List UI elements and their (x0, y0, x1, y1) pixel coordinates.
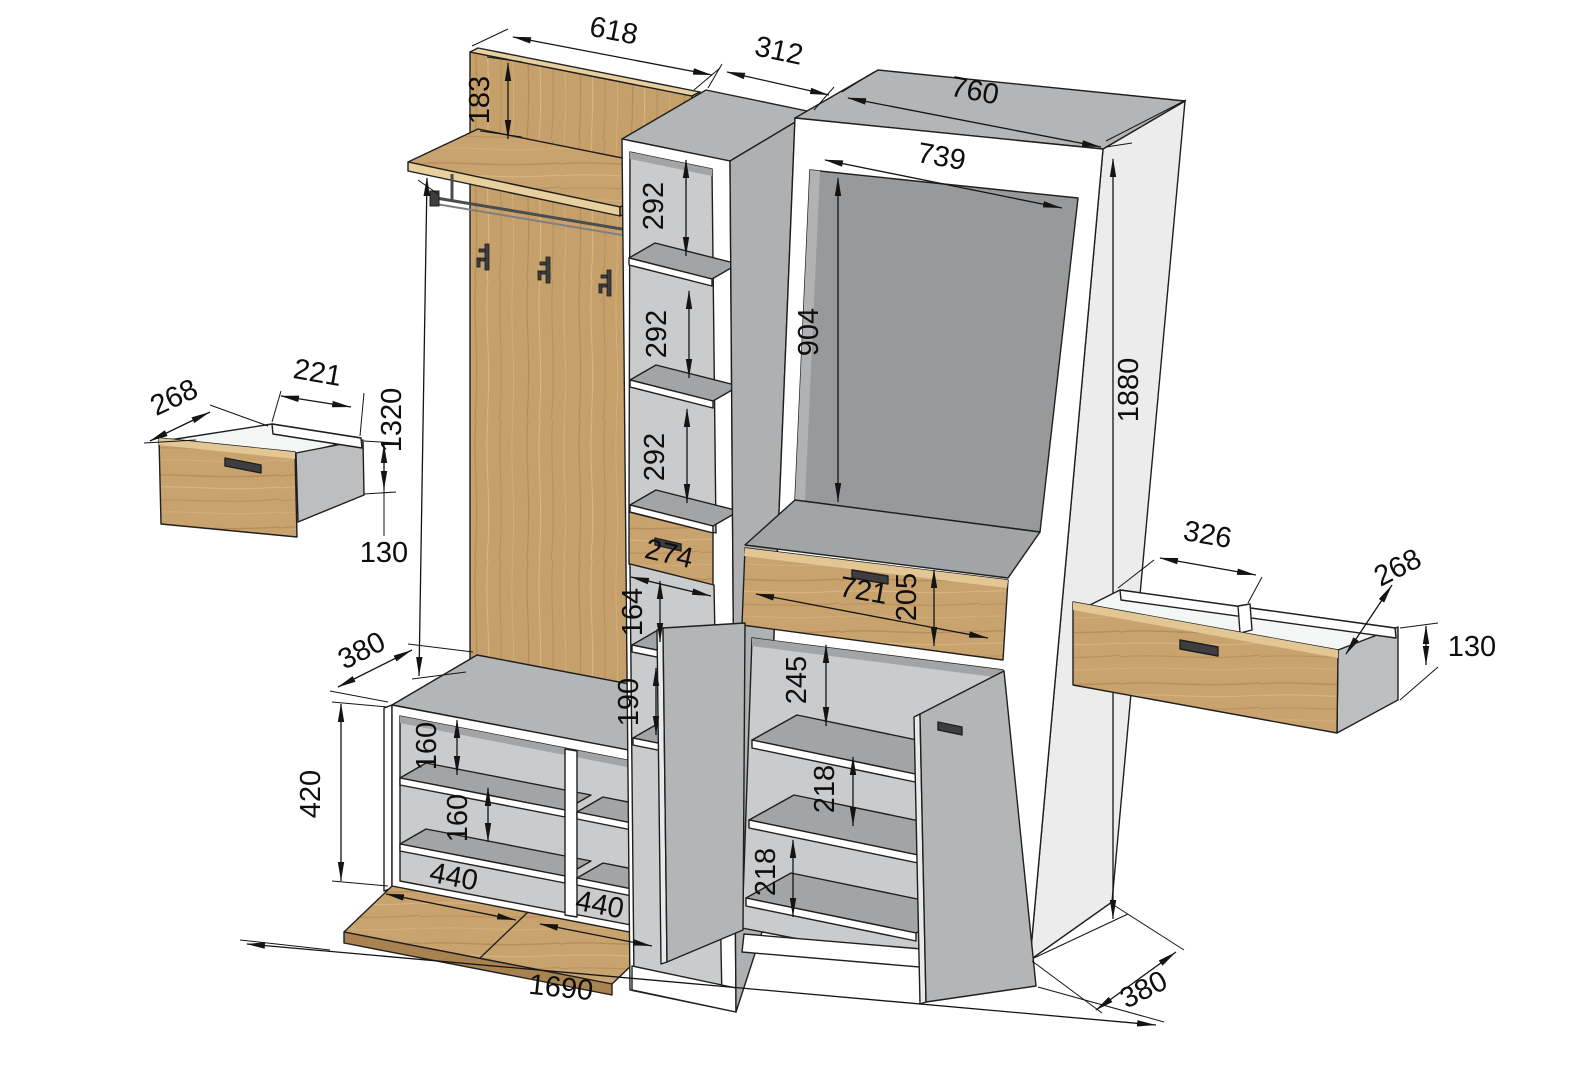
dim-shelf-spacing: 292 (638, 182, 670, 230)
dim-panel-top-offset: 183 (464, 76, 496, 124)
column-door-open (657, 623, 745, 964)
dim-bench-shelf-spacing: 160 (411, 722, 443, 770)
technical-drawing-page: 618 312 760 183 739 904 1880 1320 292 29… (0, 0, 1577, 1080)
dim-cabinet-drawer-height: 205 (891, 573, 923, 621)
dim-bench-height: 420 (295, 770, 327, 818)
dim-total-height: 1880 (1113, 358, 1145, 423)
furniture-drawing: 618 312 760 183 739 904 1880 1320 292 29… (0, 0, 1577, 1080)
dim-column-gap-upper: 164 (617, 588, 649, 636)
dim-shelf-spacing: 292 (641, 310, 673, 358)
dim-bench-shelf-spacing: 160 (442, 794, 474, 842)
dim-total-width: 1690 (527, 969, 595, 1008)
dim-cabinet-shelf-spacing: 218 (809, 765, 841, 813)
dim-opening-height: 904 (793, 308, 825, 356)
dim-column-gap-lower: 190 (613, 678, 645, 726)
dim-cabinet-gap-top: 245 (781, 656, 813, 704)
dim-drawer-height: 130 (360, 537, 408, 569)
dim-shelf-spacing: 292 (639, 433, 671, 481)
dim-drawer-height: 130 (1448, 631, 1496, 663)
dim-cabinet-shelf-spacing: 218 (750, 848, 782, 896)
